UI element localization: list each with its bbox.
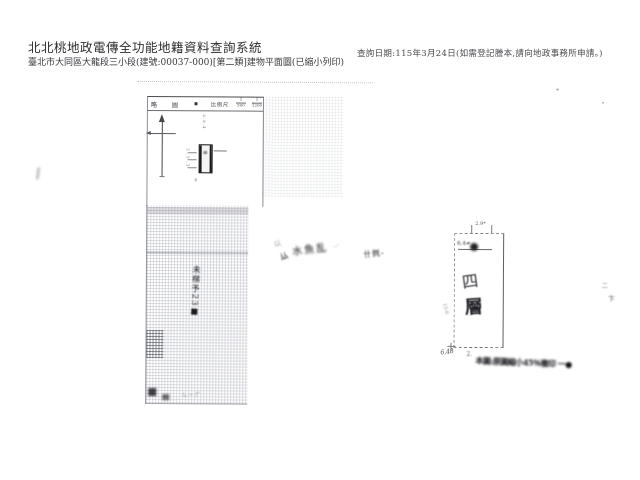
dim-label-left: 13-6	[441, 303, 450, 315]
ink-blob	[162, 394, 169, 400]
scale-fraction-500: 1 500	[233, 98, 249, 108]
stamp-lead-mark: 2.	[466, 351, 472, 358]
scan-speck	[602, 102, 604, 104]
form-header-cell: ▪	[194, 100, 198, 107]
scan-top-dotted-line	[137, 81, 373, 83]
illegible-handwriting-note-b: 卄毿‐	[363, 247, 386, 260]
floor-char-ceng: 層	[464, 292, 484, 319]
illegible-handwriting-ghost: 以	[273, 238, 282, 249]
form-header-cell: 圖	[172, 100, 178, 109]
north-arrow-foot-tick	[160, 176, 165, 177]
grid-dark-band	[147, 251, 248, 255]
faint-mark: 二	[602, 281, 608, 290]
mini-building-hatch: ≡	[203, 149, 208, 156]
mini-dim-bottom: 6	[194, 177, 197, 182]
dim-tick	[188, 152, 197, 153]
dim-tick	[188, 167, 197, 168]
faint-mark: 卞	[608, 294, 615, 304]
illegible-handwriting-mark: 厸	[278, 250, 289, 263]
ink-blob	[148, 388, 156, 396]
corner-cross-tick	[447, 346, 455, 347]
dim-tick	[471, 225, 472, 233]
dim-label-bottom: 6.48	[440, 348, 454, 357]
illegible-grid-scribble: し⌐厂	[182, 391, 202, 398]
form-header-cell: 略	[151, 100, 157, 109]
dim-tick	[491, 225, 492, 233]
scale-label: 比例尺	[211, 101, 229, 108]
dim-label-inner: 6.4≠	[457, 241, 470, 247]
grid-dark-patch	[146, 330, 163, 358]
north-arrow-crossbar	[150, 133, 176, 134]
illegible-stamp-text: 本圖:原圖縮小45％複印 一●	[475, 355, 572, 370]
north-arrow-crossbar-head	[146, 131, 151, 135]
dim-pointer-line	[214, 150, 227, 151]
dim-label-top: 2.9*	[475, 221, 485, 227]
land-registry-query-page: 北北桃地政電傳全功能地籍資料查詢系統 臺北市大同區大龍段三小段(建號:00037…	[0, 0, 640, 480]
scan-speck	[556, 88, 559, 90]
faint-grid-area	[262, 97, 343, 197]
scanned-floorplan-sheet: 略 圖 ▪ 比例尺 1 500 1 1200 ≡ 3.0.4 2.5.3 6	[0, 0, 640, 480]
dim-tick	[188, 159, 197, 160]
mini-dim-top: 3.0.4	[202, 114, 207, 129]
scale-denominator: 500	[233, 103, 249, 108]
ink-blob	[470, 243, 478, 251]
grid-dark-band	[147, 207, 248, 215]
floor-char-si: 四	[460, 267, 479, 293]
scan-edge-mark	[36, 167, 41, 179]
illegible-handwriting-trail: ‥·	[333, 242, 339, 249]
illegible-handwriting-note: 水魚乱	[291, 239, 328, 258]
